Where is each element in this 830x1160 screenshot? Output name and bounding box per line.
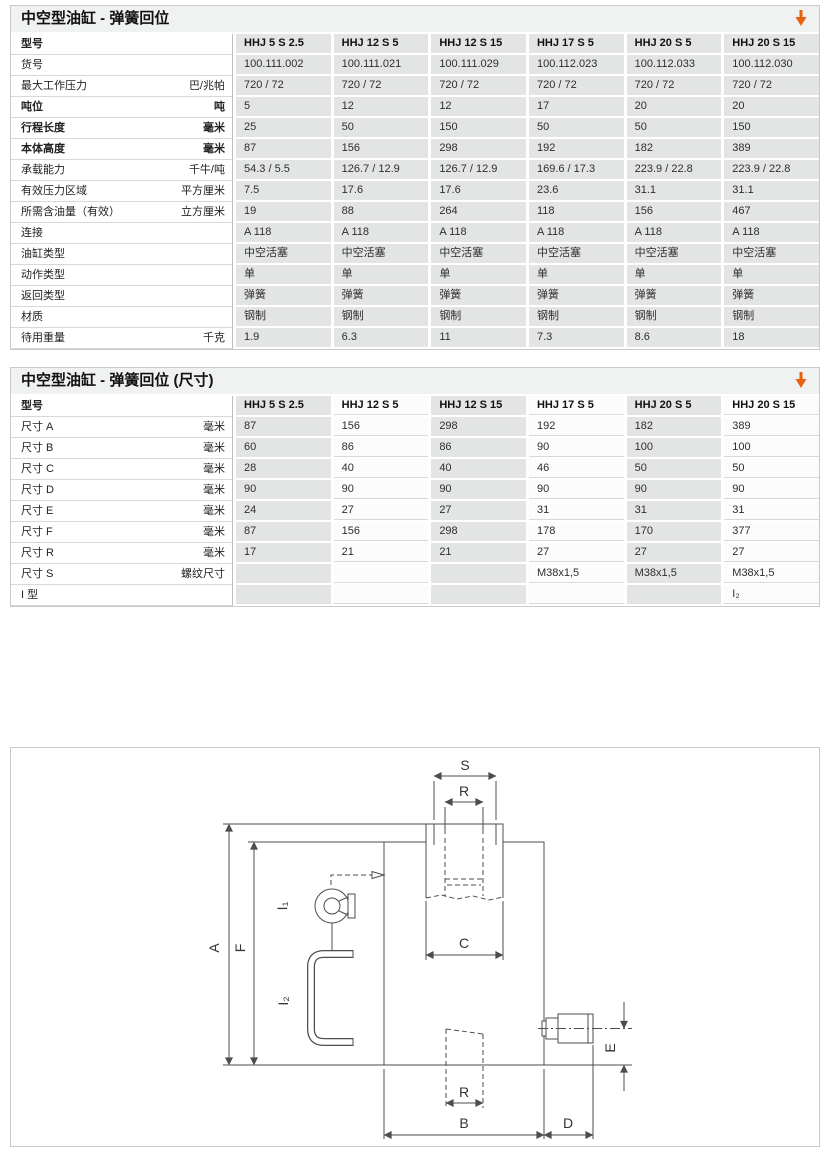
column-header: HHJ 20 S 5 (624, 34, 722, 55)
cell-value: 720 / 72 (233, 76, 331, 97)
cell-value: 100.112.023 (526, 55, 624, 76)
cell-value: 单 (624, 265, 722, 286)
cell-value: 中空活塞 (624, 244, 722, 265)
cell-value: 377 (721, 522, 819, 543)
cell-value: 钢制 (624, 307, 722, 328)
cell-value: 87 (233, 139, 331, 160)
row-unit: 千克 (203, 331, 230, 346)
row-header: 尺寸 C毫米 (11, 459, 233, 480)
cell-value: 182 (624, 139, 722, 160)
row-header: 尺寸 F毫米 (11, 522, 233, 543)
cell-value: 钢制 (526, 307, 624, 328)
cell-value: 27 (721, 543, 819, 564)
cell-value: 弹簧 (721, 286, 819, 307)
row-header: 货号 (11, 55, 233, 76)
row-header-content: 尺寸 S螺纹尺寸 (21, 567, 230, 582)
row-header: I 型 (11, 585, 233, 606)
row-header-content: 所需含油量（有效）立方厘米 (21, 205, 230, 220)
row-label: 有效压力区域 (21, 184, 87, 199)
cell-value (331, 585, 429, 606)
cell-value: 150 (721, 118, 819, 139)
row-unit: 巴/兆帕 (189, 79, 230, 94)
cell-value: 27 (331, 501, 429, 522)
cell-value: 169.6 / 17.3 (526, 160, 624, 181)
row-label: 尺寸 R (21, 546, 54, 561)
cell-value (233, 564, 331, 585)
cell-value: 28 (233, 459, 331, 480)
row-header-content: 承载能力千牛/吨 (21, 163, 230, 178)
cell-value: 6.3 (331, 328, 429, 349)
cell-value: 150 (428, 118, 526, 139)
row-header-content: 本体高度毫米 (21, 142, 230, 157)
cell-value: 720 / 72 (331, 76, 429, 97)
cell-value: 弹簧 (331, 286, 429, 307)
cell-value: 钢制 (721, 307, 819, 328)
row-unit: 毫米 (203, 420, 230, 435)
cell-value: 156 (331, 522, 429, 543)
cell-value: 100.111.021 (331, 55, 429, 76)
cell-value: 钢制 (428, 307, 526, 328)
spec-section-title: 中空型油缸 - 弹簧回位 (21, 10, 169, 27)
cell-value: 100.111.002 (233, 55, 331, 76)
row-label: 动作类型 (21, 268, 65, 283)
row-label: 尺寸 D (21, 483, 54, 498)
label-i2: I₂ (275, 996, 291, 1005)
cell-value: M38x1,5 (721, 564, 819, 585)
cell-value: 223.9 / 22.8 (624, 160, 722, 181)
dim-label-a: A (206, 943, 222, 953)
cell-value: 90 (526, 438, 624, 459)
row-header-content: 尺寸 R毫米 (21, 546, 230, 561)
catalog-page: 中空型油缸 - 弹簧回位 型号HHJ 5 S 2.5HHJ 12 S 5HHJ … (0, 0, 830, 1147)
spec-table: 型号HHJ 5 S 2.5HHJ 12 S 5HHJ 12 S 15HHJ 17… (11, 34, 819, 349)
cell-value: 21 (331, 543, 429, 564)
column-header: HHJ 5 S 2.5 (233, 34, 331, 55)
cell-value (624, 585, 722, 606)
cell-value: 720 / 72 (428, 76, 526, 97)
cell-value: 12 (331, 97, 429, 118)
cell-value: 弹簧 (233, 286, 331, 307)
down-arrow-icon (793, 371, 809, 390)
cell-value: A 118 (331, 223, 429, 244)
cell-value: 21 (428, 543, 526, 564)
row-header: 返回类型 (11, 286, 233, 307)
column-header: HHJ 20 S 15 (721, 396, 819, 417)
cell-value: 170 (624, 522, 722, 543)
cell-value: 25 (233, 118, 331, 139)
row-header: 最大工作压力巴/兆帕 (11, 76, 233, 97)
cell-value: 50 (624, 118, 722, 139)
cell-value: 弹簧 (428, 286, 526, 307)
cell-value: 90 (233, 480, 331, 501)
down-arrow-icon (793, 9, 809, 28)
cell-value: 298 (428, 522, 526, 543)
cell-value: 31 (624, 501, 722, 522)
row-unit: 毫米 (203, 483, 230, 498)
cell-value: 50 (331, 118, 429, 139)
row-unit: 立方厘米 (181, 205, 230, 220)
dim-label-r-top: R (459, 783, 469, 799)
row-header-content: 待用重量千克 (21, 331, 230, 346)
row-header-content: 尺寸 E毫米 (21, 504, 230, 519)
row-header-content: 连接 (21, 226, 230, 241)
row-label: 油缸类型 (21, 247, 65, 262)
cell-value: 31.1 (624, 181, 722, 202)
cell-value: 单 (526, 265, 624, 286)
cell-value: 54.3 / 5.5 (233, 160, 331, 181)
dim-label-e: E (602, 1043, 618, 1052)
row-header: 材质 (11, 307, 233, 328)
cell-value: 90 (721, 480, 819, 501)
cell-value: A 118 (526, 223, 624, 244)
cell-value: 126.7 / 12.9 (331, 160, 429, 181)
row-label: 本体高度 (21, 142, 65, 157)
row-label: 尺寸 F (21, 525, 53, 540)
cell-value: A 118 (428, 223, 526, 244)
row-header: 尺寸 R毫米 (11, 543, 233, 564)
cell-value: 298 (428, 417, 526, 438)
cell-value: 90 (428, 480, 526, 501)
cell-value: 156 (331, 139, 429, 160)
cell-value: A 118 (624, 223, 722, 244)
column-header: HHJ 20 S 15 (721, 34, 819, 55)
row-header: 承载能力千牛/吨 (11, 160, 233, 181)
cell-value: 单 (233, 265, 331, 286)
cell-value: 389 (721, 417, 819, 438)
row-header: 尺寸 A毫米 (11, 417, 233, 438)
dimensions-section-title-bar: 中空型油缸 - 弹簧回位 (尺寸) (11, 368, 819, 396)
models-header-label: 型号 (11, 396, 233, 417)
cell-value (428, 585, 526, 606)
cell-value: 17 (526, 97, 624, 118)
cell-value: 20 (721, 97, 819, 118)
cell-value: 5 (233, 97, 331, 118)
row-label: 吨位 (21, 100, 43, 115)
row-label: 尺寸 S (21, 567, 53, 582)
row-unit: 毫米 (203, 462, 230, 477)
cell-value: 20 (624, 97, 722, 118)
row-header-content: 材质 (21, 310, 230, 325)
cell-value: 87 (233, 522, 331, 543)
cell-value: 27 (526, 543, 624, 564)
cell-value: 27 (428, 501, 526, 522)
dimensions-section-title: 中空型油缸 - 弹簧回位 (尺寸) (21, 372, 214, 389)
cell-value: 156 (331, 417, 429, 438)
cell-value: 87 (233, 417, 331, 438)
cell-value: 弹簧 (526, 286, 624, 307)
row-header: 连接 (11, 223, 233, 244)
models-header-label: 型号 (11, 34, 233, 55)
row-unit: 毫米 (203, 525, 230, 540)
row-header-content: 返回类型 (21, 289, 230, 304)
cell-value: 7.3 (526, 328, 624, 349)
row-header: 尺寸 D毫米 (11, 480, 233, 501)
cell-value: 86 (331, 438, 429, 459)
cell-value: 50 (721, 459, 819, 480)
cell-value: 40 (331, 459, 429, 480)
cell-value: 90 (331, 480, 429, 501)
row-unit: 毫米 (203, 441, 230, 456)
row-header-content: 油缸类型 (21, 247, 230, 262)
cell-value: 192 (526, 139, 624, 160)
row-header-content: 尺寸 D毫米 (21, 483, 230, 498)
cell-value: 弹簧 (624, 286, 722, 307)
cell-value: 178 (526, 522, 624, 543)
cylinder-technical-drawing: S R C A F I₁ I₂ E R B D (11, 748, 819, 1146)
dim-label-f: F (232, 944, 248, 953)
cell-value: 24 (233, 501, 331, 522)
cell-value: 118 (526, 202, 624, 223)
cell-value: 100.111.029 (428, 55, 526, 76)
cell-value: 23.6 (526, 181, 624, 202)
cell-value: 88 (331, 202, 429, 223)
technical-drawing-panel: S R C A F I₁ I₂ E R B D (10, 747, 820, 1147)
cell-value: 50 (526, 118, 624, 139)
cell-value: 18 (721, 328, 819, 349)
cell-value: 27 (624, 543, 722, 564)
row-label: 返回类型 (21, 289, 65, 304)
row-label: 承载能力 (21, 163, 65, 178)
cell-value: 467 (721, 202, 819, 223)
row-label: 所需含油量（有效） (21, 205, 120, 220)
cell-value: 17.6 (428, 181, 526, 202)
cell-value: 40 (428, 459, 526, 480)
row-header: 行程长度毫米 (11, 118, 233, 139)
row-header-content: 最大工作压力巴/兆帕 (21, 79, 230, 94)
cell-value: 46 (526, 459, 624, 480)
row-header: 油缸类型 (11, 244, 233, 265)
row-label: 货号 (21, 58, 43, 73)
cell-value: 389 (721, 139, 819, 160)
cell-value: 中空活塞 (233, 244, 331, 265)
cell-value (428, 564, 526, 585)
row-label: 尺寸 A (21, 420, 53, 435)
cell-value (331, 564, 429, 585)
lifting-eye-and-handle (311, 872, 384, 1047)
column-header: HHJ 5 S 2.5 (233, 396, 331, 417)
row-label: I 型 (21, 588, 38, 603)
row-label: 尺寸 C (21, 462, 54, 477)
cell-value: 8.6 (624, 328, 722, 349)
row-header: 所需含油量（有效）立方厘米 (11, 202, 233, 223)
row-header-content: 尺寸 A毫米 (21, 420, 230, 435)
cell-value: 720 / 72 (526, 76, 624, 97)
dimensions-table: 型号HHJ 5 S 2.5HHJ 12 S 5HHJ 12 S 15HHJ 17… (11, 396, 819, 606)
cell-value: 12 (428, 97, 526, 118)
cell-value: 钢制 (331, 307, 429, 328)
row-label: 最大工作压力 (21, 79, 87, 94)
row-label: 尺寸 B (21, 441, 53, 456)
cell-value: 单 (721, 265, 819, 286)
column-header: HHJ 12 S 15 (428, 34, 526, 55)
cell-value: 100.112.033 (624, 55, 722, 76)
cell-value: 31 (526, 501, 624, 522)
column-header: HHJ 17 S 5 (526, 34, 624, 55)
cell-value: 中空活塞 (526, 244, 624, 265)
cell-value: 7.5 (233, 181, 331, 202)
dim-label-c: C (459, 935, 469, 951)
cell-value: 31 (721, 501, 819, 522)
cell-value: 100 (721, 438, 819, 459)
row-header: 尺寸 E毫米 (11, 501, 233, 522)
row-header: 待用重量千克 (11, 328, 233, 349)
spec-section: 中空型油缸 - 弹簧回位 型号HHJ 5 S 2.5HHJ 12 S 5HHJ … (10, 5, 820, 350)
dim-label-b: B (459, 1115, 468, 1131)
cell-value (233, 585, 331, 606)
row-header: 动作类型 (11, 265, 233, 286)
column-header: HHJ 12 S 5 (331, 34, 429, 55)
row-header: 本体高度毫米 (11, 139, 233, 160)
cell-value: 100.112.030 (721, 55, 819, 76)
cell-value: 单 (428, 265, 526, 286)
cell-value: 182 (624, 417, 722, 438)
row-unit: 毫米 (203, 504, 230, 519)
cell-value: 中空活塞 (428, 244, 526, 265)
cell-value: 298 (428, 139, 526, 160)
cell-value: 126.7 / 12.9 (428, 160, 526, 181)
cell-value: 192 (526, 417, 624, 438)
cell-value: 19 (233, 202, 331, 223)
row-label: 尺寸 E (21, 504, 53, 519)
spec-section-title-bar: 中空型油缸 - 弹簧回位 (11, 6, 819, 34)
column-header: HHJ 17 S 5 (526, 396, 624, 417)
cell-value: M38x1,5 (624, 564, 722, 585)
row-unit: 毫米 (203, 142, 230, 157)
row-header-content: 行程长度毫米 (21, 121, 230, 136)
row-unit: 螺纹尺寸 (181, 567, 230, 582)
row-header: 尺寸 B毫米 (11, 438, 233, 459)
dim-label-r-bottom: R (459, 1084, 469, 1100)
row-header-content: 有效压力区域平方厘米 (21, 184, 230, 199)
column-header: HHJ 20 S 5 (624, 396, 722, 417)
cell-value: 264 (428, 202, 526, 223)
row-header: 尺寸 S螺纹尺寸 (11, 564, 233, 585)
cell-value: 100 (624, 438, 722, 459)
cell-value: A 118 (233, 223, 331, 244)
row-unit: 平方厘米 (181, 184, 230, 199)
cell-value: 60 (233, 438, 331, 459)
dimensions-section: 中空型油缸 - 弹簧回位 (尺寸) 型号HHJ 5 S 2.5HHJ 12 S … (10, 367, 820, 607)
cell-value: 17.6 (331, 181, 429, 202)
cell-value: 31.1 (721, 181, 819, 202)
row-label: 连接 (21, 226, 43, 241)
row-header: 吨位吨 (11, 97, 233, 118)
row-header: 有效压力区域平方厘米 (11, 181, 233, 202)
cell-value: 11 (428, 328, 526, 349)
cell-value: M38x1,5 (526, 564, 624, 585)
column-header: HHJ 12 S 15 (428, 396, 526, 417)
label-i1: I₁ (274, 901, 290, 910)
row-unit: 吨 (214, 100, 230, 115)
cell-value: 中空活塞 (331, 244, 429, 265)
row-header-content: 尺寸 F毫米 (21, 525, 230, 540)
cell-value (526, 585, 624, 606)
cell-value: 1.9 (233, 328, 331, 349)
cell-value: A 118 (721, 223, 819, 244)
cell-value: I₂ (721, 585, 819, 606)
row-unit: 毫米 (203, 546, 230, 561)
cell-value: 86 (428, 438, 526, 459)
cell-value: 中空活塞 (721, 244, 819, 265)
row-unit: 千牛/吨 (189, 163, 230, 178)
row-label: 待用重量 (21, 331, 65, 346)
dim-label-d: D (563, 1115, 573, 1131)
cell-value: 50 (624, 459, 722, 480)
cell-value: 223.9 / 22.8 (721, 160, 819, 181)
cell-value: 钢制 (233, 307, 331, 328)
cell-value: 720 / 72 (624, 76, 722, 97)
row-header-content: 尺寸 B毫米 (21, 441, 230, 456)
cell-value: 单 (331, 265, 429, 286)
row-label: 行程长度 (21, 121, 65, 136)
row-header-content: 吨位吨 (21, 100, 230, 115)
row-header-content: I 型 (21, 588, 230, 603)
dim-label-s: S (460, 757, 469, 773)
column-header: HHJ 12 S 5 (331, 396, 429, 417)
cell-value: 156 (624, 202, 722, 223)
cylinder-body-outline (384, 824, 544, 1108)
row-header-content: 尺寸 C毫米 (21, 462, 230, 477)
cell-value: 90 (624, 480, 722, 501)
cell-value: 90 (526, 480, 624, 501)
cell-value: 17 (233, 543, 331, 564)
row-header-content: 货号 (21, 58, 230, 73)
cell-value: 720 / 72 (721, 76, 819, 97)
row-header-content: 动作类型 (21, 268, 230, 283)
row-unit: 毫米 (203, 121, 230, 136)
row-label: 材质 (21, 310, 43, 325)
oil-port-fitting (538, 1014, 632, 1043)
